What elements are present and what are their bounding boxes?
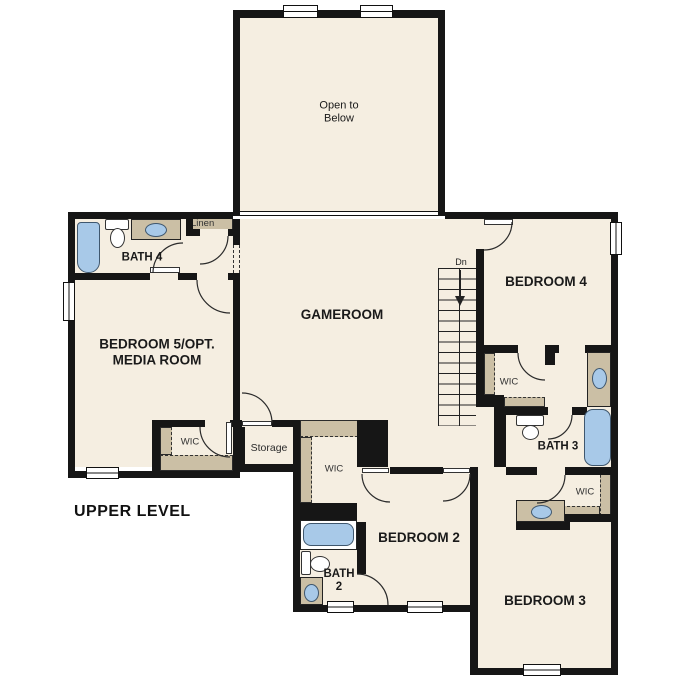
wall bbox=[494, 407, 506, 467]
wall bbox=[545, 353, 555, 365]
door-opening bbox=[150, 273, 178, 280]
wall bbox=[186, 229, 200, 236]
door-leaf bbox=[242, 421, 272, 426]
wall bbox=[233, 464, 300, 472]
closet-shelf bbox=[504, 397, 545, 407]
door-opening bbox=[548, 407, 572, 415]
closet-label-wic-bedroom4: WIC bbox=[500, 378, 518, 389]
room-label-bedroom5: BEDROOM 5/OPT. MEDIA ROOM bbox=[92, 336, 222, 367]
wall bbox=[476, 345, 518, 353]
door-opening bbox=[559, 345, 585, 353]
room-label-bedroom2: BEDROOM 2 bbox=[378, 530, 460, 546]
door-opening bbox=[200, 229, 228, 236]
closet-shelf bbox=[484, 353, 495, 395]
wall bbox=[445, 212, 611, 219]
door-leaf bbox=[226, 422, 232, 454]
wall bbox=[68, 212, 233, 219]
bathtub bbox=[303, 523, 354, 546]
door-opening bbox=[197, 273, 228, 280]
wall bbox=[611, 212, 618, 675]
dashed-opening bbox=[233, 245, 240, 273]
floor-area-bedroom3 bbox=[478, 612, 611, 668]
closet-shelf bbox=[300, 437, 312, 503]
wall bbox=[68, 273, 150, 280]
wall bbox=[178, 273, 197, 280]
wall bbox=[506, 407, 548, 415]
wall bbox=[388, 467, 443, 474]
vanity-sink bbox=[592, 368, 607, 389]
door-opening bbox=[518, 345, 545, 353]
closet-shelf bbox=[600, 470, 611, 516]
closet-shelf bbox=[160, 455, 233, 471]
wall bbox=[476, 249, 484, 407]
floor-plan: Linen bbox=[0, 0, 687, 687]
window bbox=[407, 601, 443, 613]
room-label-bath2: BATH 2 bbox=[319, 568, 359, 594]
vanity-sink bbox=[145, 223, 167, 237]
wall bbox=[357, 522, 366, 574]
room-label-gameroom: GAMEROOM bbox=[301, 307, 384, 323]
door-opening bbox=[476, 219, 484, 249]
window bbox=[360, 5, 393, 18]
wall bbox=[233, 10, 445, 18]
bathtub bbox=[584, 409, 611, 466]
wall bbox=[293, 605, 478, 612]
stairs-down-arrow-head bbox=[455, 296, 465, 306]
closet-label-wic-bedroom3: WIC bbox=[576, 488, 594, 499]
wall bbox=[484, 395, 504, 407]
window bbox=[610, 222, 622, 255]
door-leaf bbox=[443, 468, 470, 473]
stairs bbox=[438, 268, 476, 426]
vanity-sink bbox=[304, 584, 319, 602]
door-leaf bbox=[150, 267, 180, 273]
closet-shelf bbox=[300, 420, 358, 437]
closet-shelf bbox=[160, 427, 172, 455]
room-label-bedroom3: BEDROOM 3 bbox=[504, 593, 586, 609]
closet-label-wic-bedroom2: WIC bbox=[325, 465, 343, 476]
closet-label-wic-bedroom5: WIC bbox=[181, 438, 199, 449]
open-to-below-railing bbox=[240, 211, 438, 216]
wall bbox=[506, 467, 537, 475]
door-leaf bbox=[484, 219, 513, 225]
wall bbox=[272, 420, 300, 427]
level-title: UPPER LEVEL bbox=[74, 503, 191, 521]
stairs-direction-label: Dn bbox=[455, 257, 467, 267]
wall bbox=[545, 345, 559, 353]
wall bbox=[160, 420, 205, 427]
wall bbox=[562, 514, 611, 522]
window bbox=[86, 467, 119, 479]
wall bbox=[565, 467, 611, 475]
room-label-open-to-below: Open to Below bbox=[315, 99, 363, 124]
wall bbox=[470, 467, 478, 675]
door-leaf bbox=[362, 468, 389, 473]
window bbox=[283, 5, 318, 18]
window bbox=[523, 664, 561, 676]
vanity-sink bbox=[531, 505, 552, 519]
toilet bbox=[110, 228, 125, 248]
wall bbox=[293, 420, 300, 612]
window bbox=[63, 282, 75, 321]
wall bbox=[438, 10, 445, 216]
wall bbox=[152, 420, 160, 471]
door-opening bbox=[537, 467, 565, 475]
window bbox=[327, 601, 354, 613]
wall bbox=[516, 522, 570, 530]
wall bbox=[357, 420, 388, 467]
wall bbox=[233, 10, 240, 216]
bathtub bbox=[77, 222, 100, 273]
wall bbox=[68, 212, 75, 478]
closet-label-storage: Storage bbox=[251, 442, 288, 454]
room-label-bedroom4: BEDROOM 4 bbox=[505, 274, 587, 290]
room-label-bath3: BATH 3 bbox=[538, 440, 579, 453]
stairs-down-arrow-shaft bbox=[459, 270, 461, 297]
wall bbox=[233, 219, 240, 245]
toilet bbox=[522, 425, 539, 440]
wall bbox=[233, 273, 240, 420]
room-label-bath4: BATH 4 bbox=[122, 251, 163, 264]
